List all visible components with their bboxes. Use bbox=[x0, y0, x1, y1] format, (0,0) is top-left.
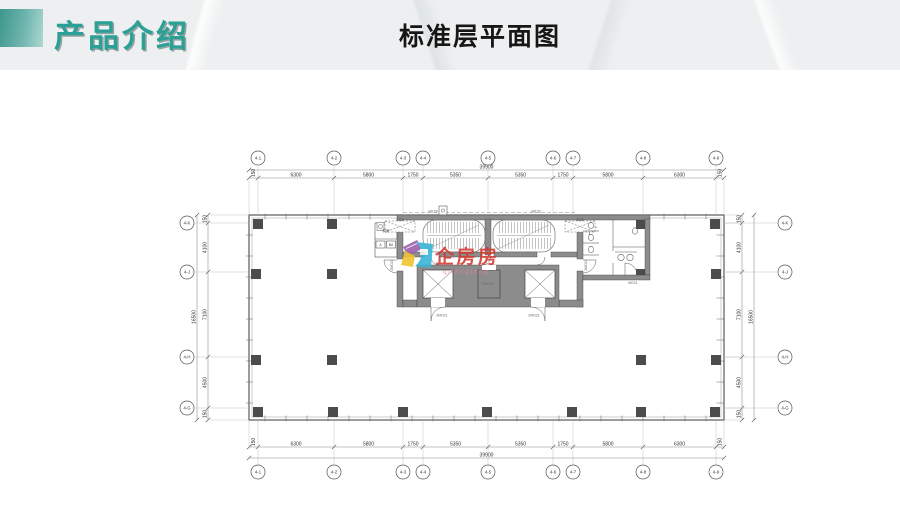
toilet-rooms bbox=[583, 220, 645, 275]
dim-label: 16500 bbox=[748, 310, 754, 324]
dim-label: 5800 bbox=[602, 172, 613, 178]
window-mullion-ticks bbox=[246, 214, 724, 422]
dim-label: 5350 bbox=[515, 172, 526, 178]
grid-bubble-label: 4-J bbox=[184, 270, 190, 275]
grid-bubble-label: 4-3 bbox=[400, 156, 407, 161]
column bbox=[711, 355, 721, 365]
dim-label: 4500 bbox=[736, 377, 742, 388]
dim-label: 7100 bbox=[736, 309, 742, 320]
column bbox=[636, 407, 646, 417]
grid-bubble-label: 4-1 bbox=[255, 470, 262, 475]
grid-bubble-label: 4-2 bbox=[331, 156, 338, 161]
dim-label: 4100 bbox=[736, 242, 742, 253]
floor-plan-area: 企房房 qifangfang 1506300580017505350535017… bbox=[165, 135, 815, 510]
grid-bubble-label: 4-6 bbox=[550, 470, 557, 475]
grid-bubble-label: 4-2 bbox=[331, 470, 338, 475]
grid-bubble-label: 4-H bbox=[782, 355, 789, 360]
door-tag: 2M021 bbox=[528, 314, 540, 318]
grid-bubble-label: 4-7 bbox=[570, 156, 577, 161]
column bbox=[327, 355, 337, 365]
column bbox=[636, 355, 646, 365]
dim-label: 7100 bbox=[202, 309, 208, 320]
dim-label: 5800 bbox=[363, 172, 374, 178]
grid-bubble-label: 4-1 bbox=[255, 156, 262, 161]
floor-plan-drawing: 企房房 qifangfang 1506300580017505350535017… bbox=[165, 135, 815, 510]
dim-label: 5350 bbox=[450, 441, 461, 447]
door-tag: BK78 bbox=[531, 210, 540, 214]
grid-bubble-label: 4-G bbox=[781, 406, 789, 411]
dim-label: 6300 bbox=[290, 441, 301, 447]
column bbox=[711, 269, 721, 279]
dim-label: 39900 bbox=[480, 452, 494, 458]
column bbox=[327, 219, 337, 229]
column bbox=[253, 219, 263, 229]
column bbox=[398, 407, 408, 417]
hydrant-box bbox=[439, 206, 447, 215]
dim-label: 150 bbox=[202, 410, 208, 419]
grid-bubble-label: 4-5 bbox=[485, 470, 492, 475]
grid-bubble-label: 4-7 bbox=[570, 470, 577, 475]
door-tag: M021 bbox=[628, 281, 638, 285]
dim-label: 150 bbox=[251, 169, 257, 178]
dim-label: 6300 bbox=[290, 172, 301, 178]
dim-label: 16500 bbox=[191, 310, 197, 324]
grid-bubble-label: 4-9 bbox=[713, 470, 720, 475]
watermark-text: 企房房 bbox=[434, 245, 500, 268]
door-tag: FM022 bbox=[482, 282, 494, 286]
grid-bubble-label: 4-8 bbox=[640, 470, 647, 475]
dimension-lines: 1506300580017505350535017505800630015039… bbox=[180, 151, 792, 479]
door-tag: BK78 bbox=[428, 210, 437, 214]
door-tag: 2M021 bbox=[584, 259, 588, 271]
column bbox=[327, 269, 337, 279]
accent-square bbox=[0, 9, 43, 47]
dim-label: 6300 bbox=[674, 172, 685, 178]
room-label: 机房 bbox=[382, 228, 390, 233]
door-tag: 2M021 bbox=[390, 259, 394, 271]
dim-label: 5800 bbox=[602, 441, 613, 447]
room-label: BA bbox=[389, 243, 394, 247]
column bbox=[710, 407, 720, 417]
grid-bubble-label: 4-4 bbox=[420, 156, 427, 161]
watermark-subtext: qifangfang bbox=[443, 269, 489, 276]
dim-label: 150 bbox=[251, 438, 257, 447]
dim-label: 150 bbox=[718, 438, 724, 447]
dim-label: 1750 bbox=[557, 172, 568, 178]
room-label: A bbox=[379, 243, 382, 247]
dim-label: 5800 bbox=[363, 441, 374, 447]
column bbox=[710, 219, 720, 229]
grid-bubble-label: 4-K bbox=[184, 221, 191, 226]
grid-bubble-label: 4-6 bbox=[550, 156, 557, 161]
grid-bubble-label: 4-G bbox=[183, 406, 191, 411]
dim-label: 1750 bbox=[407, 172, 418, 178]
section-title: 产品介绍 bbox=[54, 11, 190, 56]
stairwell-right bbox=[493, 220, 555, 252]
page-title: 标准层平面图 bbox=[399, 17, 561, 53]
dim-label: 1750 bbox=[557, 441, 568, 447]
grid-bubble-label: 4-3 bbox=[400, 470, 407, 475]
dim-label: 5350 bbox=[450, 172, 461, 178]
column bbox=[251, 355, 261, 365]
door-tag: 2M021 bbox=[436, 314, 448, 318]
column bbox=[567, 407, 577, 417]
dim-label: 6300 bbox=[674, 441, 685, 447]
column bbox=[482, 407, 492, 417]
grid-bubble-label: 4-5 bbox=[485, 156, 492, 161]
grid-bubble-label: 4-H bbox=[184, 355, 191, 360]
column bbox=[636, 219, 646, 229]
grid-bubble-label: 4-9 bbox=[713, 156, 720, 161]
dim-label: 150 bbox=[718, 169, 724, 178]
column bbox=[328, 407, 338, 417]
dim-label: 4100 bbox=[202, 242, 208, 253]
grid-bubble-label: 4-4 bbox=[420, 470, 427, 475]
dim-label: 1750 bbox=[407, 441, 418, 447]
grid-bubble-label: 4-K bbox=[782, 221, 789, 226]
slide-header: 产品介绍 标准层平面图 bbox=[0, 0, 900, 70]
dim-label: 150 bbox=[202, 215, 208, 224]
dim-label: 4500 bbox=[202, 377, 208, 388]
dim-label: 150 bbox=[736, 410, 742, 419]
dim-label: 150 bbox=[736, 215, 742, 224]
grid-bubble-label: 4-J bbox=[782, 270, 788, 275]
grid-bubble-label: 4-8 bbox=[640, 156, 647, 161]
column bbox=[251, 269, 261, 279]
column bbox=[253, 407, 263, 417]
dim-label: 5350 bbox=[515, 441, 526, 447]
